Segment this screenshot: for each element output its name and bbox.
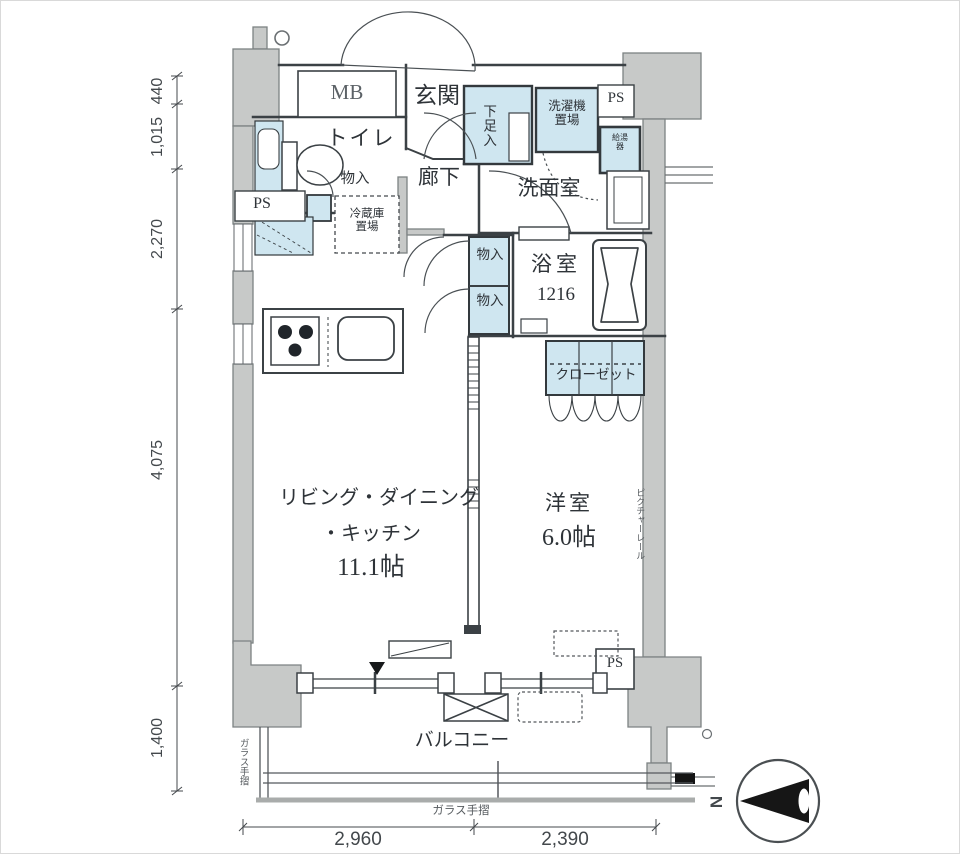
dim-bottom-2390: 2,390 — [515, 829, 615, 851]
toilet-sink — [258, 129, 279, 169]
wall-stub-top-left — [253, 27, 267, 49]
kitchen-sink — [338, 317, 394, 360]
meter-box-label: MB — [321, 81, 373, 105]
dim-left-1400: 1,400 — [149, 708, 167, 768]
fridge-space-label: 冷蔵庫置場 — [347, 208, 387, 234]
ps-top-label: PS — [600, 90, 632, 107]
wall-left-lower — [233, 364, 253, 643]
pillar-bottom-left — [233, 641, 301, 727]
western-room-size-label: 6.0帖 — [529, 525, 609, 552]
hall-storage-lower-label: 物入 — [473, 293, 507, 308]
wall-block-top-left — [233, 49, 279, 126]
corridor-wall-bottom — [407, 229, 444, 235]
washer-space-label: 洗濯機置場 — [545, 99, 589, 127]
bath-door — [519, 227, 569, 240]
floor-plan: MB 玄関 下足入 洗濯機置場 PS 給湯器 トイレ 物入 PS 廊下 洗面室 … — [0, 0, 960, 854]
corridor-label: 廊下 — [413, 166, 465, 190]
stove — [271, 317, 319, 365]
level-marker — [369, 662, 385, 675]
shoe-cabinet-label: 下足入 — [481, 95, 496, 157]
entrance-door-leaf — [341, 65, 475, 71]
compass-north-label: N — [707, 782, 727, 822]
compass — [737, 760, 819, 842]
ldk-size-label: 11.1帖 — [301, 554, 441, 582]
bath-counter — [521, 319, 547, 333]
hall-storage-upper-label: 物入 — [473, 247, 507, 262]
ps-left-label: PS — [241, 195, 283, 213]
ldk-door-arc — [404, 237, 444, 277]
hall-storage-door-upper — [424, 241, 469, 286]
balcony-window-wall — [297, 672, 607, 694]
closet-bifold-doors — [549, 395, 641, 421]
hall-storage-door-lower — [425, 289, 469, 333]
glass-rail-left-label: ガラス手摺 — [237, 727, 248, 797]
wall-left-mid — [233, 271, 253, 324]
sliding-door-symbol — [369, 641, 451, 675]
dim-left-4075: 4,075 — [149, 430, 167, 490]
dim-left-2270: 2,270 — [149, 209, 167, 269]
washroom-vanity-basin — [614, 177, 642, 223]
western-room-label: 洋室 — [537, 492, 601, 516]
corridor-wall-left — [398, 177, 407, 253]
bathroom-label: 浴室 — [521, 253, 591, 277]
partition-wall — [464, 337, 481, 634]
outdoor-unit-outline — [518, 692, 582, 722]
drain-mark — [703, 730, 712, 739]
ldk-label-line1: リビング・ダイニング — [279, 487, 463, 509]
dim-left-1015: 1,015 — [149, 107, 167, 167]
ldk-label-line2: ・キッチン — [283, 523, 459, 545]
toilet-storage-label: 物入 — [333, 171, 377, 187]
closet-label: クローゼット — [550, 367, 642, 382]
door-scope-mark — [275, 31, 289, 45]
glass-rail-bottom-label: ガラス手摺 — [423, 805, 499, 818]
hatch-box — [444, 694, 508, 721]
entrance-label: 玄関 — [409, 83, 465, 109]
toilet-label: トイレ — [313, 127, 409, 151]
toilet-tank — [282, 142, 297, 190]
picture-rail-label: ピクチャーレール — [635, 459, 645, 589]
washroom-label: 洗面室 — [505, 177, 593, 201]
kitchen — [263, 309, 403, 373]
ps-bottom-label: PS — [600, 655, 630, 671]
entrance-door-arc — [341, 12, 475, 71]
shoe-cabinet-inner — [509, 113, 529, 161]
pillar-bottom-right — [628, 657, 701, 763]
dim-bottom-2960: 2,960 — [308, 829, 408, 851]
water-heater-label: 給湯器 — [609, 134, 631, 152]
bathroom-size-label: 1216 — [525, 284, 587, 305]
balcony-label: バルコニー — [407, 730, 517, 751]
pillar-top-right — [623, 53, 701, 119]
balcony-drain-box — [647, 763, 671, 789]
